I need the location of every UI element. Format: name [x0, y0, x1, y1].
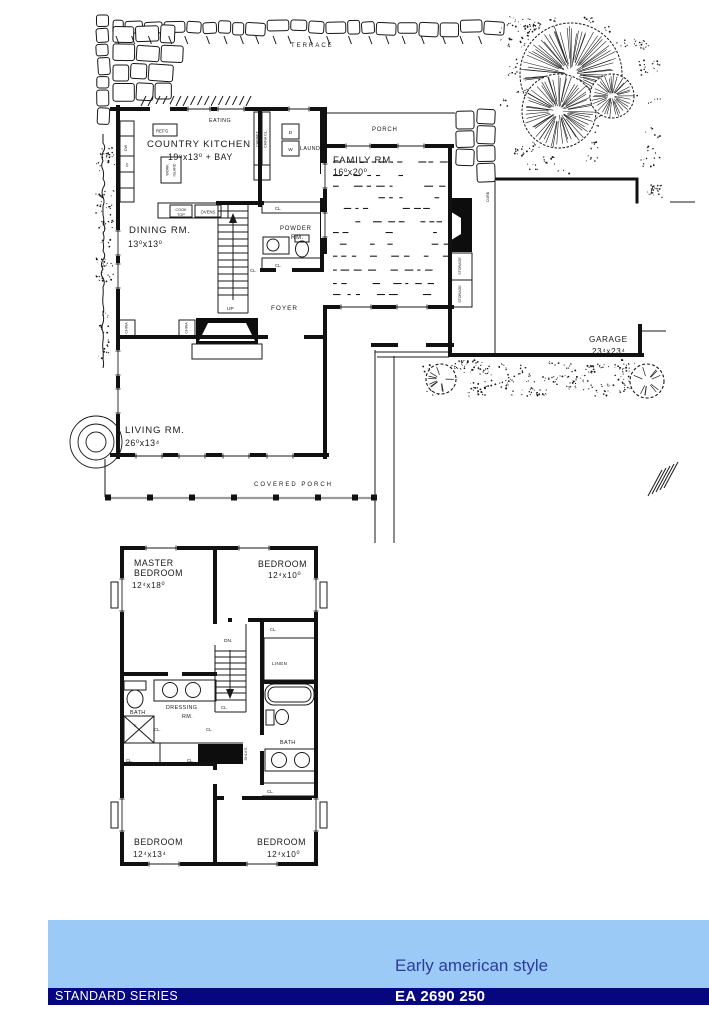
dressing-room-label-2: RM. — [182, 714, 193, 720]
country-kitchen-label: COUNTRY KITCHEN — [147, 139, 251, 150]
closet-label-powder-top: CL. — [275, 206, 282, 211]
closet-label-bedroom3-1: CL. — [126, 758, 133, 763]
bedroom-2-dims: 12⁴x10⁰ — [268, 571, 301, 580]
master-bedroom-label-2: BEDROOM — [134, 568, 183, 578]
footer-banner: Early american style — [48, 920, 709, 988]
living-room-dims: 26⁰x13⁴ — [125, 438, 160, 448]
bedroom-4-dims: 12⁴x10⁰ — [267, 850, 300, 859]
closet-label-powder-bottom: CL. — [275, 263, 282, 268]
cabinet-label: CABINET — [256, 130, 260, 146]
bedroom-3-dims: 12⁴x13⁴ — [133, 850, 167, 859]
shelves-unit — [198, 744, 243, 764]
bath-left-toilet-tank — [124, 681, 146, 690]
closet-label-bedroom3-2: CL. — [187, 758, 194, 763]
garage-dims: 23⁴x23⁴ — [592, 347, 626, 356]
laundry-label: LAUND — [300, 146, 320, 152]
shelves-label: SHLV'S — [244, 747, 248, 760]
powder-room-label-1: POWDER — [280, 226, 312, 232]
first-floor-plan — [105, 107, 695, 543]
pantry-label: P'TRY — [259, 167, 263, 178]
terrace-label: TERRACE — [291, 43, 334, 49]
storage-label-1: STORAGE — [458, 257, 462, 275]
bath-right-vanity — [265, 749, 316, 771]
family-room-dims: 16⁰x20⁰ — [333, 167, 368, 177]
second-floor-plan — [122, 548, 316, 864]
refrigerator-label: REF'G — [156, 129, 168, 134]
country-kitchen-dims: 19⁸x13⁰ + BAY — [168, 152, 233, 162]
bath-right-toilet-tank — [266, 710, 274, 725]
closet-label-stairs-2f: CL. — [221, 705, 228, 710]
first-floor-fixtures — [105, 112, 695, 543]
style-label: Early american style — [395, 956, 548, 976]
series-label: STANDARD SERIES — [55, 988, 178, 1005]
work-island-label-1: WORK — [166, 164, 170, 176]
ovens-label: OVENS — [201, 210, 216, 215]
floor-plan-drawing: TERRACE EATING COUNTRY KITCHEN 19⁸x13⁰ +… — [0, 0, 709, 1011]
china-label-right: CHINA — [185, 322, 189, 334]
washer-label: W — [288, 147, 293, 153]
master-bedroom-label-1: MASTER — [134, 558, 174, 568]
footer-bar: STANDARD SERIES EA 2690 250 — [48, 988, 709, 1005]
bedroom-4-label: BEDROOM — [257, 837, 306, 847]
stone-wall-line — [497, 179, 637, 202]
linen-label: LINEN — [272, 661, 287, 666]
storage-label-2: STORAGE — [458, 285, 462, 303]
second-floor-walls — [122, 548, 316, 864]
dining-room-label: DINING RM. — [129, 225, 191, 236]
bath-left-toilet — [127, 690, 143, 708]
foyer-label: FOYER — [271, 305, 298, 312]
garage-label: GARAGE — [589, 335, 628, 344]
cook-top-label-2: TOP — [177, 213, 185, 217]
work-island-label-2: ISLAND — [173, 163, 177, 176]
china-label-left: CHINA — [125, 322, 129, 334]
dressing-counter — [154, 680, 216, 701]
bedroom-2-label: BEDROOM — [258, 559, 307, 569]
bath-right-toilet — [276, 710, 289, 725]
covered-porch-label: COVERED PORCH — [254, 482, 333, 488]
closet-label-dressing-1: CL. — [154, 727, 161, 732]
living-hearth — [192, 344, 262, 359]
powder-closet-top — [262, 202, 322, 213]
dining-room-dims: 13⁰x13⁰ — [128, 239, 163, 249]
plan-sheet-page: TERRACE EATING COUNTRY KITCHEN 19⁸x13⁰ +… — [0, 0, 709, 1011]
master-bedroom-dims: 12⁴x18⁰ — [132, 581, 165, 590]
closet-label-bedroom4: CL. — [267, 789, 274, 794]
china-closet-label: CHINA CL. — [264, 130, 268, 148]
dryer-label: D — [289, 130, 293, 136]
porch-label: PORCH — [372, 127, 398, 133]
family-room-label: FAMILY RM. — [333, 155, 395, 166]
sink-label: S — [126, 163, 129, 168]
powder-toilet — [296, 241, 309, 257]
down-label: DN. — [224, 638, 232, 644]
bath-right-label: BATH — [280, 740, 296, 746]
bedroom-3-label: BEDROOM — [134, 837, 183, 847]
bath-left-label: BATH — [130, 710, 146, 716]
closet-label-bedroom2: CL. — [270, 627, 277, 632]
plan-number: EA 2690 250 — [395, 988, 485, 1005]
cook-top-label-1: COOK — [175, 208, 187, 212]
closet-label-dressing-2: CL. — [206, 727, 213, 732]
powder-room-label-2: RM. — [291, 235, 304, 241]
up-label: UP — [227, 306, 234, 312]
living-room-label: LIVING RM. — [125, 425, 185, 436]
dressing-room-label-1: DRESSING — [166, 705, 197, 711]
dishwasher-label: DW — [124, 144, 128, 151]
curb-label: CURB — [486, 191, 490, 202]
second-floor-fixtures — [122, 620, 316, 796]
closet-label-stairs: CL. — [250, 268, 257, 273]
eating-label: EATING — [209, 118, 231, 124]
kitchen-counter-left — [120, 121, 134, 202]
linen-closet — [264, 638, 316, 680]
